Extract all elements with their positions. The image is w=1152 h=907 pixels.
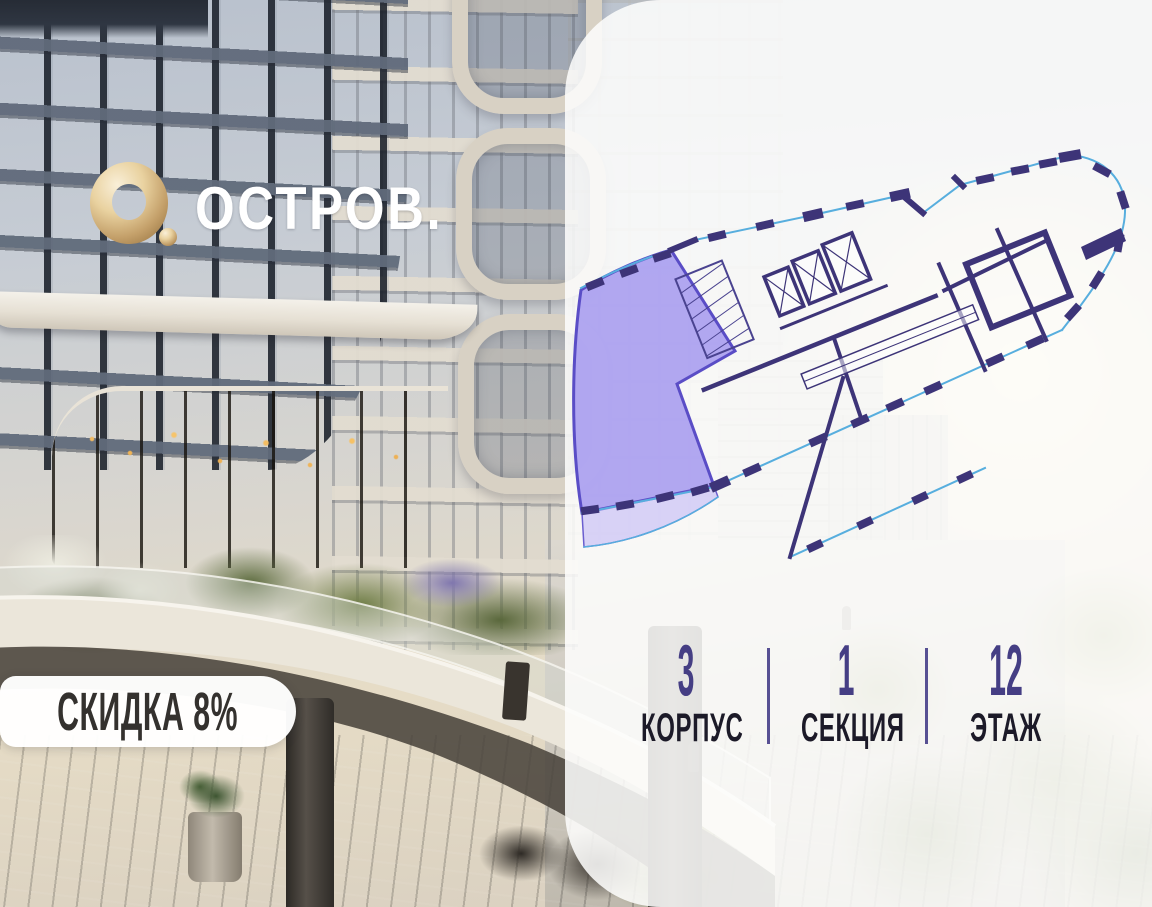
stat-sekcia-label: СЕКЦИЯ — [801, 711, 891, 745]
stat-korpus-value: 3 — [655, 640, 718, 702]
photo-roofline — [0, 0, 208, 38]
stat-sekcia: 1 СЕКЦИЯ — [771, 640, 921, 745]
stat-korpus-label: КОРПУС — [641, 711, 731, 745]
stat-etazh-value: 12 — [975, 640, 1038, 702]
photo-planter-plant — [176, 762, 256, 824]
discount-badge-label: СКИДКА 8% — [57, 681, 238, 743]
stat-etazh-label: ЭТАЖ — [961, 711, 1051, 745]
floor-plan — [565, 0, 1152, 660]
photo-menu-board — [502, 661, 530, 721]
discount-badge: СКИДКА 8% — [0, 676, 296, 747]
highlighted-unit[interactable] — [574, 250, 735, 513]
stat-divider — [767, 648, 770, 744]
brand-logo: ОСТРОВ. — [84, 156, 524, 256]
photo-shrubs — [0, 760, 170, 907]
stat-divider — [925, 648, 928, 744]
logo-wordmark: ОСТРОВ. — [195, 178, 443, 240]
promo-card: ОСТРОВ. СКИДКА 8% — [0, 0, 1152, 907]
photo-column — [286, 698, 334, 907]
elevator-shafts — [761, 233, 871, 316]
stat-korpus: 3 КОРПУС — [611, 640, 761, 745]
logo-o-ring-icon — [84, 156, 180, 252]
logo-o-dot — [159, 228, 177, 246]
stat-etazh: 12 ЭТАЖ — [931, 640, 1081, 745]
plan-interior — [662, 144, 1085, 470]
stat-sekcia-value: 1 — [815, 640, 878, 702]
floorplan-panel: 3 КОРПУС 1 СЕКЦИЯ 12 ЭТАЖ — [565, 0, 1152, 907]
